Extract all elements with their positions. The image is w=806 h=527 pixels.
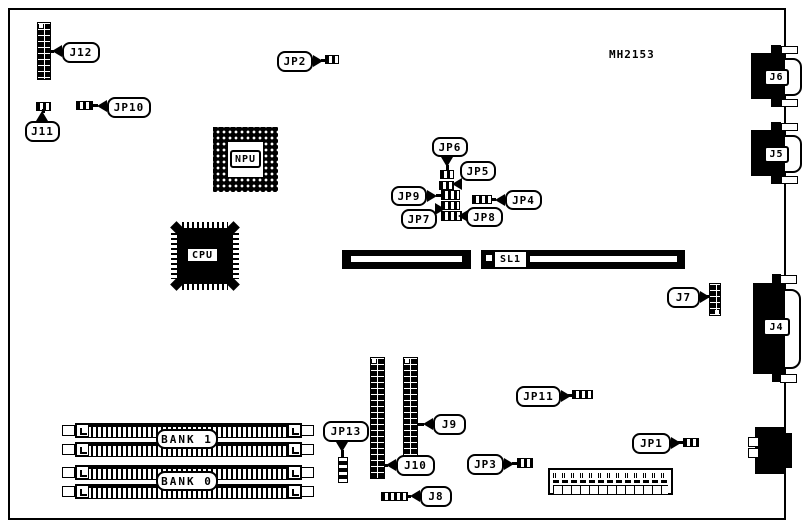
sl1-key-notch [486, 255, 492, 261]
simm-latch-right [288, 466, 301, 479]
j12-callout: J12 [62, 42, 100, 63]
jp10-callout-label: JP10 [114, 101, 145, 114]
jp4-jumper [472, 195, 492, 204]
j7-callout: J7 [667, 287, 700, 308]
bank0-label-box: BANK 0 [156, 471, 218, 491]
simm-latch-left [76, 424, 89, 437]
simm-mount-ear [301, 486, 314, 497]
terminal-block-cells [553, 485, 668, 495]
j9-callout: J9 [433, 414, 466, 435]
simm-mount-ear [301, 425, 314, 436]
part-number: MH2153 [609, 48, 655, 61]
j8-connector [381, 492, 408, 501]
bank1-label: BANK 1 [161, 433, 213, 446]
j6-mount-tab-outer [781, 99, 798, 107]
j4-label: J4 [769, 322, 783, 333]
jp7-callout-label: JP7 [408, 213, 431, 226]
jp13-jumper [338, 457, 348, 483]
j9-pin-header [403, 357, 418, 461]
jp3-callout: JP3 [467, 454, 504, 475]
simm-latch-right [288, 485, 301, 498]
simm-mount-ear [62, 444, 75, 455]
jp10-callout: JP10 [107, 97, 151, 118]
keyboard-din-connector [755, 427, 786, 474]
jp2-leader-line [321, 59, 327, 62]
j8-callout-tail [410, 490, 420, 502]
cpu-label-box: CPU [186, 247, 219, 263]
j5-label: J5 [769, 149, 783, 160]
pin1-marker [715, 310, 719, 314]
jp13-callout: JP13 [323, 421, 369, 442]
keyboard-din-connector-bump [786, 433, 792, 468]
jp13-leader-line [341, 450, 344, 458]
cpu-pins-right [233, 233, 239, 279]
jp5-callout: JP5 [460, 161, 496, 181]
jp11-callout: JP11 [516, 386, 561, 407]
bank0-label: BANK 0 [161, 475, 213, 488]
npu-label: NPU [235, 154, 256, 165]
j12-callout-label: J12 [70, 46, 93, 59]
j8-callout: J8 [420, 486, 452, 507]
j4-mount-tab-outer [780, 374, 797, 383]
jp1-jumper [683, 438, 699, 447]
jp8-callout: JP8 [466, 207, 503, 227]
jp4-callout: JP4 [505, 190, 542, 210]
latch-hook [292, 489, 299, 496]
latch-hook [292, 447, 299, 454]
j5-label-box: J5 [764, 146, 789, 163]
terminal-block-dashes [553, 480, 668, 483]
j10-callout-tail [386, 459, 396, 471]
j10-callout-label: J10 [404, 459, 427, 472]
latch-hook [292, 428, 299, 435]
j9-callout-label: J9 [442, 418, 457, 431]
jp9-leader-line [436, 194, 442, 197]
j10-callout: J10 [396, 455, 435, 476]
j10-pin-header [370, 357, 385, 479]
j5-mount-tab [771, 175, 781, 184]
jp9-callout: JP9 [391, 186, 427, 206]
j6-label-box: J6 [764, 69, 789, 86]
jp10-callout-tail [97, 100, 107, 112]
simm-mount-ear [301, 444, 314, 455]
j7-pin-header [709, 283, 721, 316]
cpu-pins-bottom [182, 284, 228, 290]
simm-latch-right [288, 443, 301, 456]
pin1-marker [405, 359, 409, 363]
latch-hook [80, 470, 87, 477]
latch-hook [80, 489, 87, 496]
j11-callout: J11 [25, 121, 60, 142]
simm-latch-left [76, 443, 89, 456]
simm-mount-ear [301, 467, 314, 478]
jp2-callout-label: JP2 [284, 55, 307, 68]
cpu-label: CPU [192, 250, 213, 261]
din-solder-lug [748, 448, 759, 458]
jp6-callout: JP6 [432, 137, 468, 157]
jp6-callout-label: JP6 [439, 141, 462, 154]
motherboard-layout-diagram: MH2153 J12 J11 JP10 JP2 NPU CPU [0, 0, 806, 527]
j8-callout-label: J8 [428, 490, 443, 503]
power-terminal-block [548, 468, 673, 495]
jp11-callout-label: JP11 [523, 390, 554, 403]
simm-mount-ear [62, 486, 75, 497]
jp5-callout-tail [452, 178, 462, 190]
jp10-jumper [76, 101, 93, 110]
j11-callout-tail [36, 111, 48, 121]
jp8-callout-label: JP8 [473, 211, 496, 224]
jp3-jumper [517, 458, 533, 468]
sl1-label-box: SL1 [494, 251, 527, 268]
simm-latch-left [76, 485, 89, 498]
expansion-slot-left-opening [351, 256, 462, 262]
npu-label-box: NPU [230, 150, 261, 168]
j5-mount-tab-outer [781, 176, 798, 184]
jp3-leader-line [512, 462, 517, 465]
latch-hook [292, 470, 299, 477]
pin1-marker [372, 359, 376, 363]
pin1-marker [39, 24, 43, 28]
jp5-callout-label: JP5 [467, 165, 490, 178]
expansion-slot-sl1-opening [530, 256, 677, 262]
j6-mount-tab [771, 98, 781, 107]
j11-callout-label: J11 [31, 125, 54, 138]
jp2-callout: JP2 [277, 51, 313, 72]
latch-hook [80, 428, 87, 435]
j7-callout-label: J7 [676, 291, 691, 304]
jp11-leader-line [568, 394, 573, 397]
terminal-block-tabs [553, 473, 668, 478]
jp9-callout-label: JP9 [398, 190, 421, 203]
bank1-label-box: BANK 1 [156, 429, 218, 449]
jp11-jumper [572, 390, 593, 399]
jp4-callout-label: JP4 [512, 194, 535, 207]
j4-label-box: J4 [763, 318, 790, 336]
din-solder-lug [748, 437, 759, 447]
j7-leader-line [705, 295, 710, 298]
j9-callout-tail [423, 418, 433, 430]
j6-label: J6 [769, 72, 783, 83]
simm-latch-left [76, 466, 89, 479]
jp6-leader-line [446, 165, 449, 171]
jp1-callout-label: JP1 [640, 437, 663, 450]
jp4-callout-tail [495, 194, 505, 206]
jp13-callout-label: JP13 [331, 425, 362, 438]
jp1-leader-line [678, 441, 683, 444]
jp3-callout-label: JP3 [474, 458, 497, 471]
jp1-callout: JP1 [632, 433, 671, 454]
simm-mount-ear [62, 467, 75, 478]
jp7-callout-tail [435, 203, 445, 215]
jp9-jumper [441, 190, 460, 200]
sl1-label: SL1 [500, 254, 521, 265]
jp7-callout: JP7 [401, 209, 437, 229]
simm-latch-right [288, 424, 301, 437]
j12-callout-tail [52, 45, 62, 57]
simm-mount-ear [62, 425, 75, 436]
latch-hook [80, 447, 87, 454]
jp2-jumper [325, 55, 339, 64]
